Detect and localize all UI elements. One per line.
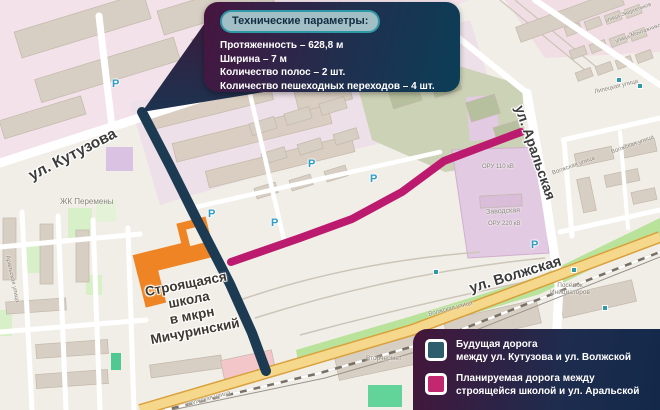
- label-zhk-peremeny: ЖК Перемены: [60, 197, 113, 206]
- legend-line: Будущая дорога: [456, 339, 631, 352]
- parking-icon: P: [208, 208, 215, 220]
- label-poselok-line: Инициаторов: [550, 289, 590, 296]
- parking-icon: P: [308, 158, 315, 170]
- callout-line-lanes: Количество полос – 2 шт.: [220, 66, 460, 80]
- callout-line-crossings: Количество пешеходных переходов – 4 шт.: [220, 80, 460, 94]
- legend-text-planned-road: Планируемая дорога между строящейся школ…: [456, 373, 639, 398]
- callout-line-length: Протяженность – 628,8 м: [220, 39, 460, 53]
- future-road-swatch: [425, 339, 447, 361]
- label-oru110: ОРУ 110 кВ: [482, 164, 514, 170]
- legend-line: Планируемая дорога между: [456, 373, 639, 386]
- legend-item-future-road: Будущая дорога между ул. Кутузова и ул. …: [425, 339, 631, 364]
- planned-road-swatch: [425, 373, 447, 395]
- technical-parameters-callout: Технические параметры: Протяженность – 6…: [204, 2, 460, 92]
- transit-stop-icon: [616, 77, 622, 83]
- callout-title: Технические параметры:: [220, 10, 380, 33]
- parking-icon: P: [531, 239, 538, 251]
- parking-icon: P: [271, 217, 278, 229]
- transit-stop-icon: [602, 305, 608, 311]
- legend-panel: Будущая дорога между ул. Кутузова и ул. …: [413, 329, 660, 410]
- callout-body: Протяженность – 628,8 м Ширина – 7 м Кол…: [220, 39, 460, 93]
- label-vtorchermet: Вторчермет: [366, 355, 402, 362]
- legend-line: между ул. Кутузова и ул. Волжской: [456, 352, 631, 365]
- transit-stop-icon: [637, 83, 643, 89]
- transit-stop-icon: [571, 267, 577, 273]
- infographic-map: ул. Кутузова ул. Аральская ул. Волжская …: [0, 0, 660, 410]
- transit-stop-icon: [433, 269, 439, 275]
- parking-icon: P: [370, 173, 377, 185]
- label-poselok-initsiatorov: Посёлок Инициаторов: [550, 282, 590, 296]
- label-oru220: ОРУ 220 кВ: [488, 221, 520, 227]
- callout-line-width: Ширина – 7 м: [220, 53, 460, 67]
- label-poselok-line: Посёлок: [550, 282, 590, 289]
- legend-line: строящейся школой и ул. Аральской: [456, 386, 639, 399]
- legend-item-planned-road: Планируемая дорога между строящейся школ…: [425, 373, 639, 398]
- legend-text-future-road: Будущая дорога между ул. Кутузова и ул. …: [456, 339, 631, 364]
